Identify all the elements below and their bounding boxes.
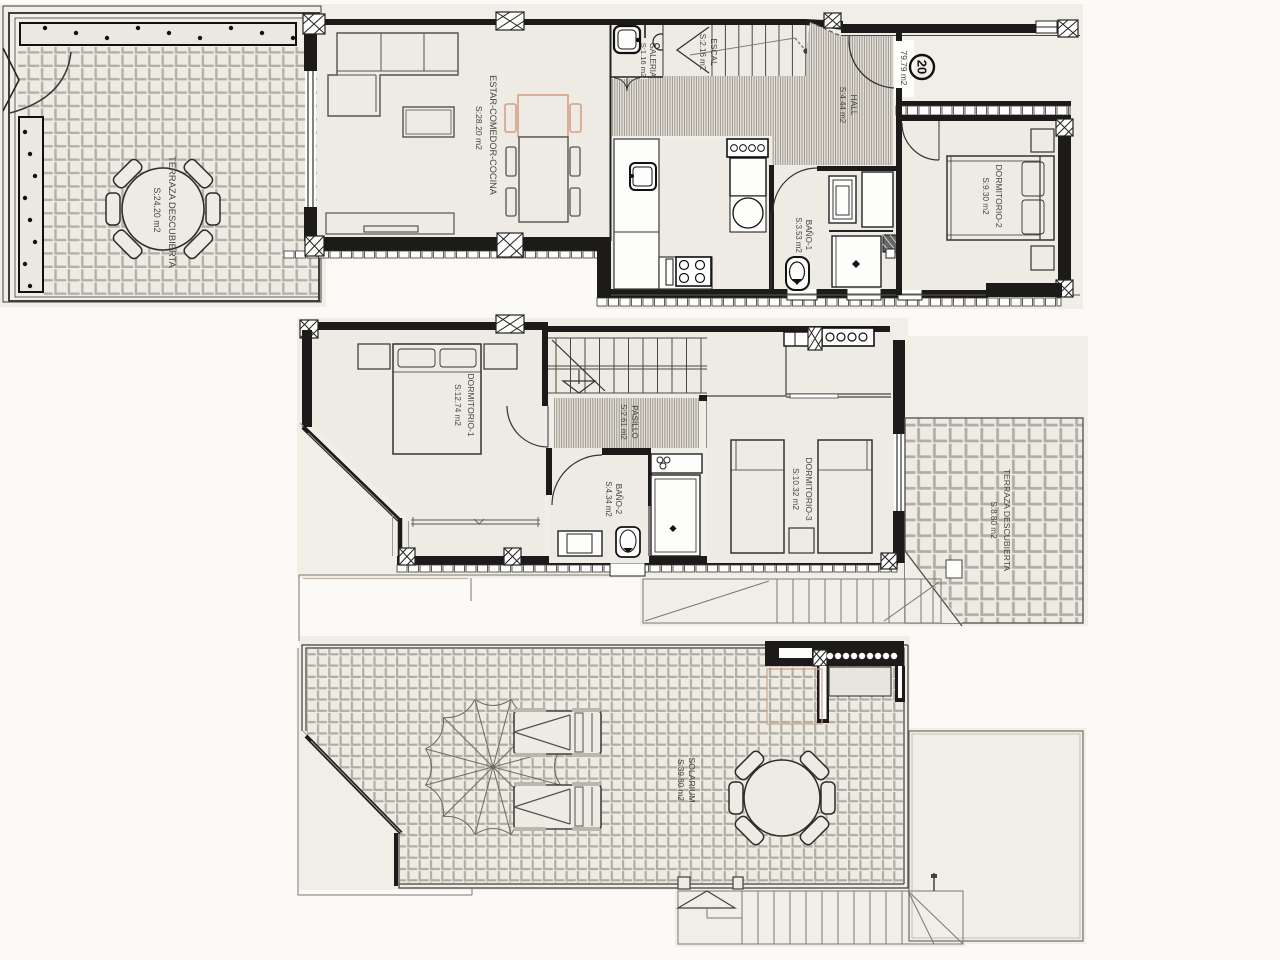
svg-text:BAÑO-2: BAÑO-2: [614, 484, 624, 515]
svg-text:S:39.80 m2: S:39.80 m2: [676, 759, 685, 801]
svg-text:HALL: HALL: [849, 95, 859, 116]
svg-text:BAÑO-1: BAÑO-1: [804, 220, 814, 251]
svg-text:DORMITORIO-3: DORMITORIO-3: [804, 457, 814, 521]
svg-text:S:2.61 m2: S:2.61 m2: [619, 404, 628, 440]
svg-text:ESCAL: ESCAL: [709, 38, 719, 66]
svg-text:TERRAZA DESCUBIERTA: TERRAZA DESCUBIERTA: [1002, 469, 1012, 572]
svg-text:GALERIA: GALERIA: [648, 43, 657, 78]
svg-text:S:28.20 m2: S:28.20 m2: [474, 106, 484, 150]
svg-text:S:24.20 m2: S:24.20 m2: [152, 188, 162, 233]
svg-text:DORMITORIO-2: DORMITORIO-2: [994, 164, 1004, 228]
svg-text:S:8.80 m2: S:8.80 m2: [989, 501, 998, 539]
svg-text:S:12.74 m2: S:12.74 m2: [453, 384, 462, 426]
svg-text:S:2.16 m2: S:2.16 m2: [698, 34, 707, 71]
svg-text:SOLARIUM: SOLARIUM: [687, 758, 697, 803]
svg-text:TERRAZA DESCUBIERTA: TERRAZA DESCUBIERTA: [167, 156, 178, 268]
svg-text:S:3.53 m2: S:3.53 m2: [794, 217, 803, 253]
svg-text:S:10.32 m2: S:10.32 m2: [791, 468, 800, 510]
svg-text:PASILLO: PASILLO: [630, 405, 639, 439]
svg-text:79.79 m2: 79.79 m2: [899, 51, 909, 86]
svg-text:S:1.16 m2: S:1.16 m2: [639, 43, 648, 78]
svg-text:S:9.30 m2: S:9.30 m2: [981, 177, 990, 215]
svg-text:S:4.34 m2: S:4.34 m2: [604, 481, 613, 517]
svg-text:S:4.44 m2: S:4.44 m2: [838, 87, 847, 124]
svg-text:20: 20: [915, 60, 930, 74]
svg-text:ESTAR-COMEDOR-COCINA: ESTAR-COMEDOR-COCINA: [488, 75, 498, 196]
svg-text:DORMITORIO-1: DORMITORIO-1: [466, 373, 476, 437]
